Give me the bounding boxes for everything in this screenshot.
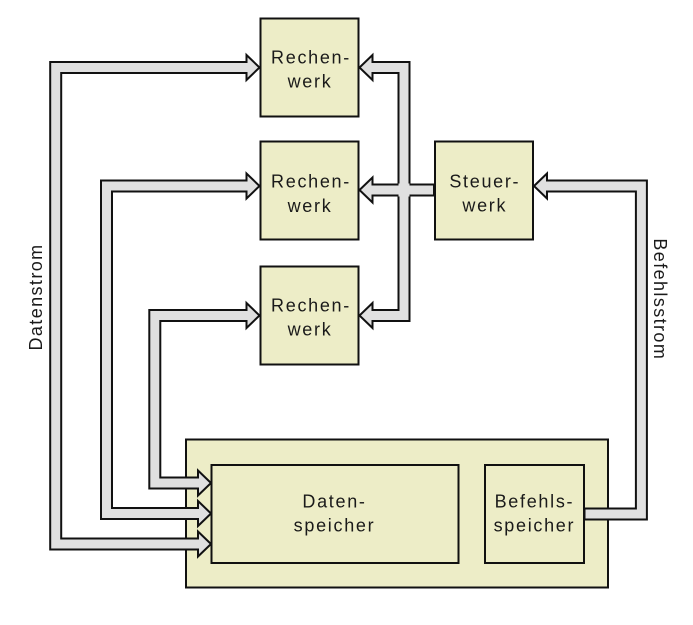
svg-text:Befehlsstrom: Befehlsstrom bbox=[650, 238, 670, 360]
svg-text:Rechen-: Rechen- bbox=[271, 172, 351, 192]
svg-text:Rechen-: Rechen- bbox=[271, 296, 351, 316]
svg-text:Datenstrom: Datenstrom bbox=[26, 243, 46, 350]
svg-text:speicher: speicher bbox=[294, 515, 376, 535]
svg-text:Rechen-: Rechen- bbox=[271, 48, 351, 68]
svg-text:werk: werk bbox=[461, 196, 507, 216]
svg-text:speicher: speicher bbox=[494, 515, 576, 535]
svg-text:Daten-: Daten- bbox=[302, 491, 366, 511]
svg-text:werk: werk bbox=[287, 72, 333, 92]
svg-text:werk: werk bbox=[287, 320, 333, 340]
svg-text:werk: werk bbox=[287, 196, 333, 216]
svg-text:Befehls-: Befehls- bbox=[495, 491, 575, 511]
svg-text:Steuer-: Steuer- bbox=[449, 172, 520, 192]
